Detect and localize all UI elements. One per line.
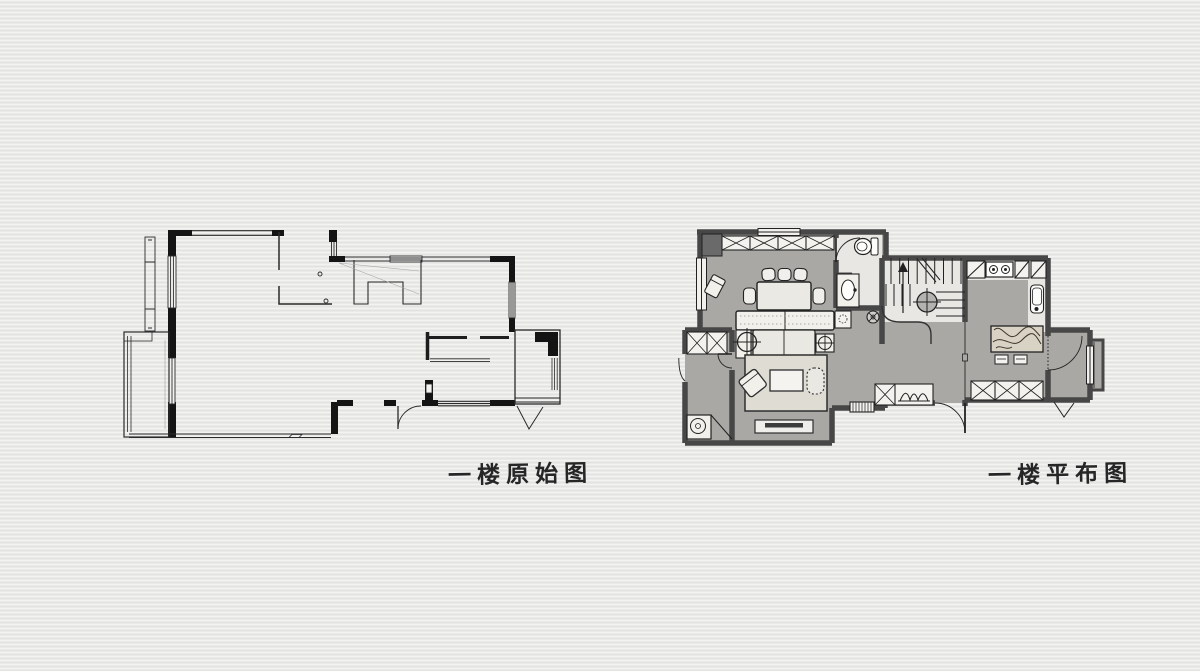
dining-chair <box>813 288 825 304</box>
furnished-floor-plan-svg <box>678 218 1128 453</box>
balcony-cabinet <box>687 332 727 354</box>
dining-chair <box>794 268 808 281</box>
interior-partitions <box>427 332 509 362</box>
side-room-bottom-swing <box>1054 402 1074 417</box>
floor-drain <box>867 311 879 323</box>
left-ledge <box>145 237 155 331</box>
toilet <box>855 238 879 255</box>
coffee-table <box>770 370 803 391</box>
thin-walls <box>129 231 490 438</box>
original-floor-plan-svg <box>122 224 562 449</box>
entry-door-swing <box>935 403 965 433</box>
original-floor-plan: 一楼原始图 <box>122 224 562 449</box>
entry-bench <box>850 402 874 412</box>
balcony <box>124 332 302 437</box>
top-cabinet-row <box>722 236 834 250</box>
dining-table <box>757 282 811 310</box>
furnished-plan-caption: 一楼平布图 <box>988 453 1134 490</box>
furnished-floor-plan: 一楼平布图 <box>678 218 1128 453</box>
floor-plan-sheet: 一楼原始图 <box>0 0 1200 671</box>
bay-window <box>515 330 560 429</box>
tv <box>765 423 803 428</box>
windows <box>168 242 515 404</box>
stool <box>995 355 1008 364</box>
entry-plant-cabinet <box>875 384 933 405</box>
pouf <box>807 368 824 394</box>
ceiling-lamp-boxed <box>816 334 835 352</box>
dining-chair <box>778 269 791 281</box>
dining-chair <box>762 268 776 281</box>
end-table <box>835 311 851 328</box>
kitchen-stove <box>986 262 1013 277</box>
kitchen-sink <box>1031 285 1044 313</box>
outer-door-swing <box>679 358 685 381</box>
entry-door-swing <box>398 384 432 429</box>
vanity <box>837 274 859 307</box>
stair-opening-outline <box>339 260 421 304</box>
dining-chair <box>744 288 756 304</box>
stool <box>1014 355 1027 364</box>
interior-room <box>279 232 332 304</box>
bay-door-swing <box>517 406 543 429</box>
kitchen-bottom-cabinets <box>971 381 1043 400</box>
original-plan-caption: 一楼原始图 <box>448 453 594 490</box>
